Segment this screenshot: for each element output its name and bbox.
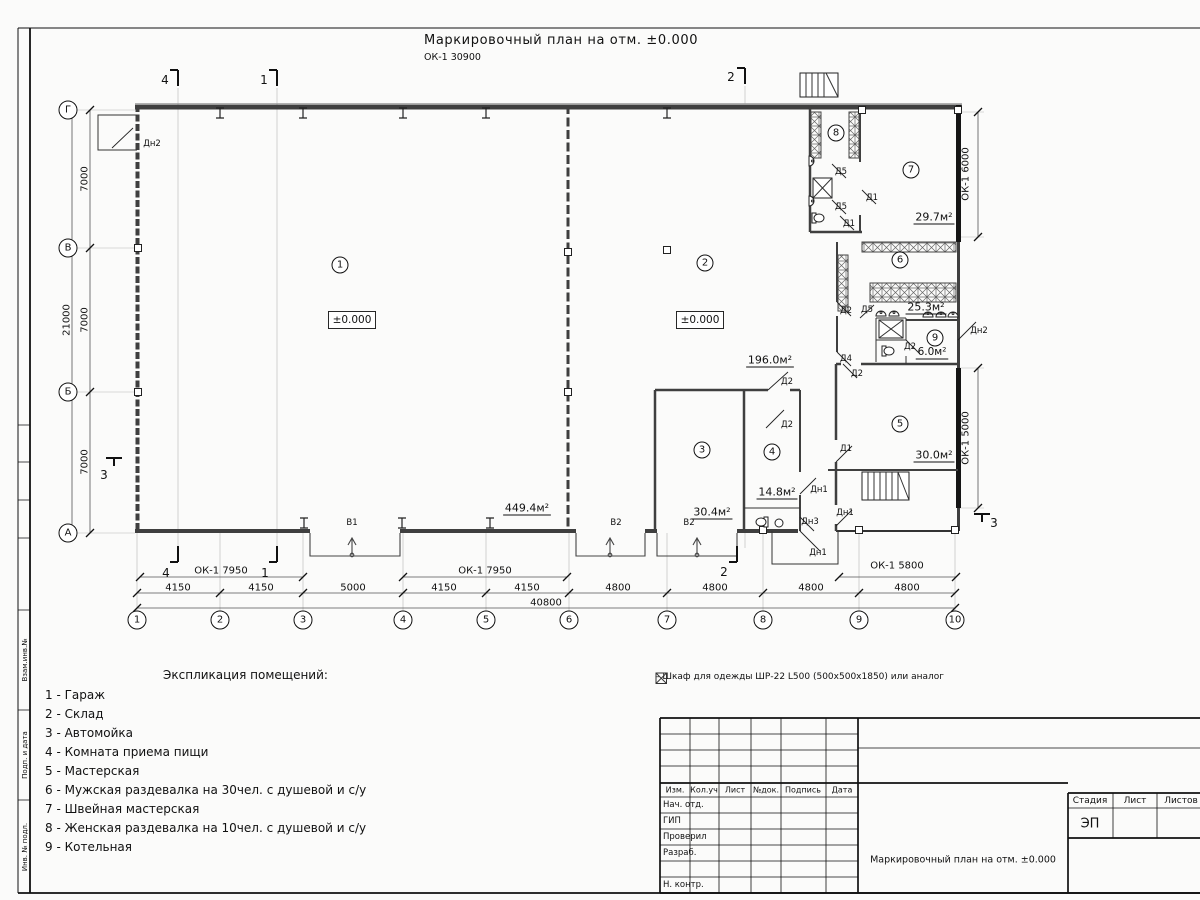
legend-item: 9 - Котельная <box>45 838 366 857</box>
plan-label: Проверил <box>663 832 707 842</box>
plan-label: 1 <box>337 260 343 271</box>
wardrobe-symbol-icon <box>655 672 668 685</box>
plan-label: В2 <box>683 518 694 528</box>
room-legend: Экспликация помещений: 1 - Гараж2 - Скла… <box>45 668 366 857</box>
plan-label: Б <box>65 387 72 398</box>
plan-label: 4800 <box>605 583 630 594</box>
plan-label: 9 <box>932 333 938 344</box>
plan-label: 4 <box>769 447 775 458</box>
plan-label: Д2 <box>904 342 916 352</box>
legend-item: 6 - Мужская раздевалка на 30чел. с душев… <box>45 781 366 800</box>
plan-label: 5000 <box>340 583 365 594</box>
drawing-sheet: 4150415050004150415048004800480048004080… <box>0 0 1200 900</box>
plan-label: ОК-1 6000 <box>961 147 972 201</box>
plan-label: 7000 <box>80 449 91 474</box>
plan-label: Инв. № подл. <box>21 823 29 871</box>
plan-label: Дн2 <box>970 326 988 336</box>
plan-label: 5 <box>483 615 489 626</box>
plan-label: Д1 <box>843 219 855 229</box>
plan-label: В1 <box>346 518 357 528</box>
plan-label: Разраб. <box>663 848 696 858</box>
plan-label: ±0.000 <box>681 314 720 326</box>
plan-label: 3 <box>699 445 705 456</box>
plan-label: 8 <box>833 128 839 139</box>
plan-label: 14.8м² <box>758 486 795 499</box>
plan-label: Г <box>65 105 71 116</box>
plan-label: 7 <box>664 615 670 626</box>
plan-label: Д5 <box>861 305 873 315</box>
plan-label: Дн1 <box>810 485 828 495</box>
plan-label: Д2 <box>781 377 793 387</box>
plan-label: 7000 <box>80 307 91 332</box>
plan-label: 25.3м² <box>907 301 944 314</box>
titleblock-grid <box>660 718 1200 893</box>
plan-label: Кол.уч <box>690 786 718 795</box>
plan-label: 7 <box>908 165 914 176</box>
plan-label: 29.7м² <box>915 211 952 224</box>
plan-label: 30.0м² <box>915 449 952 462</box>
plan-label: 196.0м² <box>748 354 792 367</box>
plan-label: ГИП <box>663 816 681 826</box>
plan-label: 4150 <box>248 583 273 594</box>
plan-label: 449.4м² <box>505 502 549 515</box>
plan-label: 6.0м² <box>918 346 947 358</box>
plan-label: 8 <box>760 615 766 626</box>
legend-item: 8 - Женская раздевалка на 10чел. с душев… <box>45 819 366 838</box>
plan-label: Д2 <box>781 420 793 430</box>
plan-label: 2 <box>727 70 735 84</box>
interior-walls <box>568 105 958 531</box>
plan-label: Взам.инв.№ <box>21 638 29 681</box>
legend-item: 7 - Швейная мастерская <box>45 800 366 819</box>
plan-label: Дн1 <box>809 548 827 558</box>
plan-label: Дн1 <box>836 508 854 518</box>
plan-label: Лист <box>725 786 746 795</box>
plan-label: 2 <box>217 615 223 626</box>
plan-label: Д2 <box>851 369 863 379</box>
plan-label: Д1 <box>840 444 852 454</box>
plan-label: 10 <box>949 615 962 626</box>
legend-item: 2 - Склад <box>45 705 366 724</box>
plan-label: ОК-1 5000 <box>961 411 972 465</box>
plan-label: 3 <box>100 468 108 482</box>
plan-label: Дн2 <box>143 139 161 149</box>
plan-label: 40800 <box>530 598 562 609</box>
stairs <box>862 472 909 500</box>
plan-label: 6 <box>897 255 903 266</box>
legend-item: 3 - Автомойка <box>45 724 366 743</box>
wardrobe-note: – Шкаф для одежды ШР-22 L500 (500x500x18… <box>655 672 944 682</box>
plan-label: Дн3 <box>801 517 819 527</box>
plan-label: Д5 <box>835 202 847 212</box>
plan-label: 4800 <box>798 583 823 594</box>
plan-label: 21000 <box>62 304 73 336</box>
plan-label: 4800 <box>702 583 727 594</box>
plan-label: 4 <box>161 73 169 87</box>
wardrobe-note-text: – Шкаф для одежды ШР-22 L500 (500x500x18… <box>655 672 944 682</box>
plan-label: Дата <box>832 786 853 795</box>
plan-label: Стадия <box>1073 796 1108 806</box>
plan-label: 3 <box>990 516 998 530</box>
plan-label: 30.4м² <box>693 506 730 519</box>
plan-label: Подпись <box>785 786 821 795</box>
legend-item: 4 - Комната приема пищи <box>45 743 366 762</box>
plan-label: А <box>65 528 72 539</box>
plan-label: 6 <box>566 615 572 626</box>
plan-label: Д2 <box>840 306 852 316</box>
plan-label: 9 <box>856 615 862 626</box>
plan-label: 4800 <box>894 583 919 594</box>
plan-label: В2 <box>610 518 621 528</box>
plan-label: Д4 <box>840 354 852 364</box>
plan-label: ОК-1 7950 <box>194 566 248 577</box>
plan-label: 2 <box>720 565 728 579</box>
plan-label: Лист <box>1124 796 1147 806</box>
plan-label: Д5 <box>835 167 847 177</box>
plan-label: Н. контр. <box>663 880 704 890</box>
plan-label: 2 <box>702 258 708 269</box>
plan-label: ЭП <box>1081 817 1100 832</box>
plan-label: Изм. <box>666 786 685 795</box>
legend-list: 1 - Гараж2 - Склад3 - Автомойка4 - Комна… <box>45 686 366 857</box>
plan-label: ±0.000 <box>333 314 372 326</box>
plan-label: Листов <box>1164 796 1198 806</box>
plan-label: Д1 <box>866 193 878 203</box>
plan-label: 5 <box>897 419 903 430</box>
legend-item: 1 - Гараж <box>45 686 366 705</box>
plan-label: ОК-1 7950 <box>458 566 512 577</box>
porches <box>98 73 838 564</box>
plan-label: 4 <box>162 566 170 580</box>
gates <box>310 533 737 557</box>
plan-label: Маркировочный план на отм. ±0.000 <box>870 855 1056 866</box>
plan-subtitle: ОК-1 30900 <box>424 52 481 63</box>
plan-label: №док. <box>753 786 779 795</box>
legend-heading: Экспликация помещений: <box>163 668 366 682</box>
plan-label: 4150 <box>165 583 190 594</box>
page-title: Маркировочный план на отм. ±0.000 <box>424 33 698 48</box>
plan-label: 1 <box>260 73 268 87</box>
legend-item: 5 - Мастерская <box>45 762 366 781</box>
plan-label: 3 <box>300 615 306 626</box>
plan-label: В <box>65 243 72 254</box>
plan-label: 4150 <box>514 583 539 594</box>
plan-label: 7000 <box>80 166 91 191</box>
plan-label: 4150 <box>431 583 456 594</box>
plan-label: Подп. и дата <box>21 731 29 779</box>
plan-label: Нач. отд. <box>663 800 704 810</box>
plan-label: 1 <box>134 615 140 626</box>
plan-label: 4 <box>400 615 406 626</box>
plan-label: ОК-1 5800 <box>870 561 924 572</box>
plan-label: 1 <box>261 566 269 580</box>
